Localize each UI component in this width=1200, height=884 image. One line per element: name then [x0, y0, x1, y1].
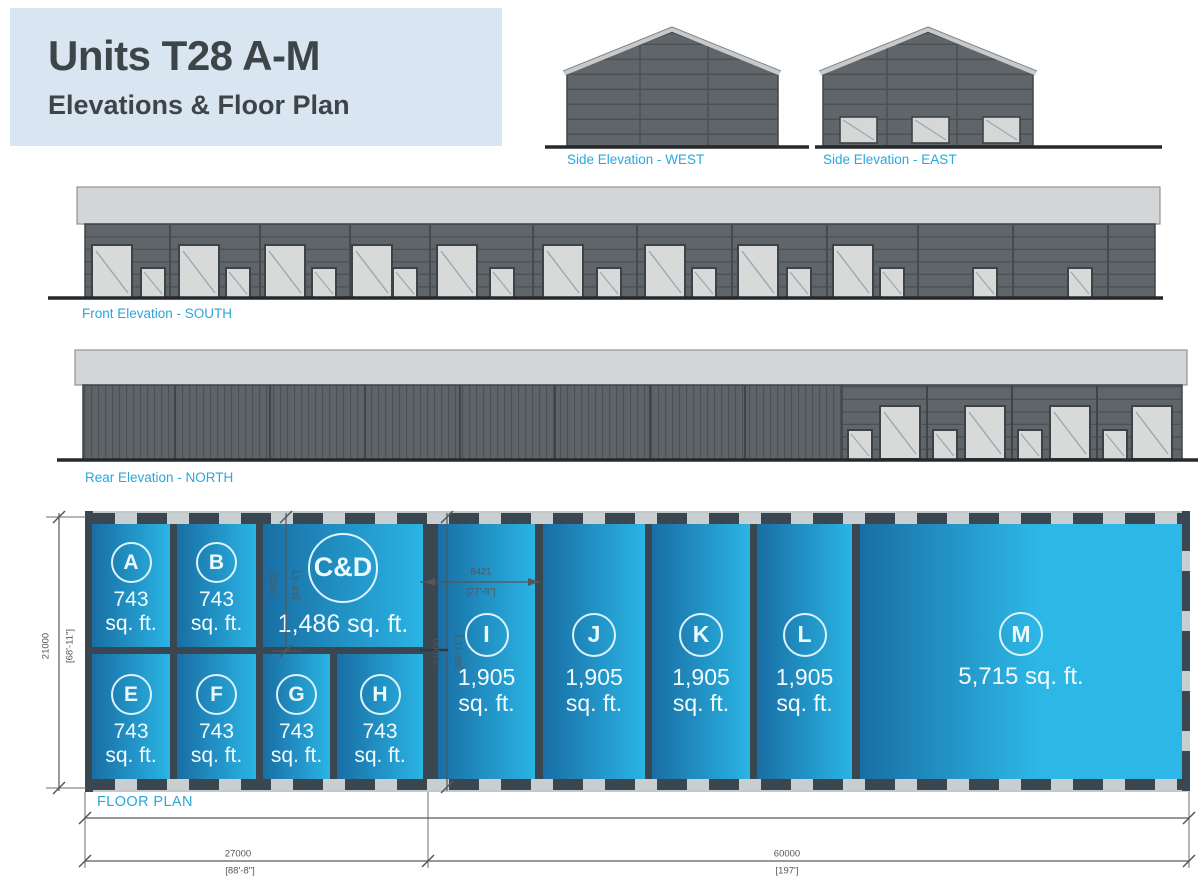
- unit-a: A 743 sq. ft.: [92, 524, 170, 647]
- dim-left-block-ft: [88'-8"]: [225, 866, 254, 877]
- unit-g: G 743 sq. ft.: [263, 654, 330, 779]
- page-subtitle: Elevations & Floor Plan: [48, 90, 350, 121]
- unit-j-area: 1,905: [565, 665, 623, 691]
- dim-unit-i-width-ft: [27'-8"]: [466, 587, 495, 598]
- title-block: Units T28 A-M Elevations & Floor Plan: [10, 8, 502, 146]
- rear-elevation-label: Rear Elevation - NORTH: [85, 470, 233, 485]
- dim-unit-i-depth-mm: 21000: [432, 639, 443, 665]
- unit-m-area: 5,715 sq. ft.: [958, 664, 1083, 690]
- unit-g-sqft: sq. ft.: [271, 744, 322, 767]
- unit-l-badge: L: [783, 613, 827, 657]
- unit-f-area: 743: [199, 720, 234, 743]
- unit-cd: C&D 1,486 sq. ft.: [263, 524, 423, 647]
- unit-b-area: 743: [199, 588, 234, 611]
- unit-m-badge: M: [999, 612, 1043, 656]
- unit-i-area: 1,905: [458, 665, 516, 691]
- unit-l: L 1,905 sq. ft.: [757, 524, 852, 779]
- unit-k-sqft: sq. ft.: [673, 691, 729, 717]
- west-gable-wall: [567, 32, 778, 146]
- rear-fascia: [75, 350, 1187, 385]
- west-elevation-label: Side Elevation - WEST: [567, 152, 704, 167]
- unit-g-badge: G: [276, 674, 317, 715]
- unit-h-area: 743: [362, 720, 397, 743]
- dim-right-block-ft: [197']: [776, 866, 799, 877]
- dim-depth-ft: [68'-11"]: [65, 629, 76, 663]
- front-elevation-label: Front Elevation - SOUTH: [82, 306, 232, 321]
- unit-b: B 743 sq. ft.: [177, 524, 256, 647]
- unit-a-badge: A: [111, 542, 152, 583]
- front-elevation-drawing: [40, 182, 1170, 314]
- floor-plan-label: FLOOR PLAN: [97, 794, 193, 810]
- unit-a-area: 743: [113, 588, 148, 611]
- unit-k-badge: K: [679, 613, 723, 657]
- unit-cd-badge: C&D: [308, 533, 378, 603]
- unit-e-area: 743: [113, 720, 148, 743]
- unit-h-badge: H: [360, 674, 401, 715]
- dim-depth-mm: 21000: [41, 633, 52, 659]
- dim-unit-i-width-mm: 8421: [470, 567, 491, 578]
- unit-j-sqft: sq. ft.: [566, 691, 622, 717]
- unit-e-sqft: sq. ft.: [105, 744, 156, 767]
- unit-m: M 5,715 sq. ft.: [860, 524, 1182, 779]
- unit-f-sqft: sq. ft.: [191, 744, 242, 767]
- unit-cd-area: 1,486 sq. ft.: [278, 611, 409, 639]
- unit-e-badge: E: [111, 674, 152, 715]
- unit-i-badge: I: [465, 613, 509, 657]
- dim-unit-i-depth-ft: [68'-11"]: [454, 635, 465, 669]
- drawing-sheet: Units T28 A-M Elevations & Floor Plan Si…: [0, 0, 1200, 884]
- unit-h: H 743 sq. ft.: [337, 654, 423, 779]
- unit-l-sqft: sq. ft.: [776, 691, 832, 717]
- unit-g-area: 743: [279, 720, 314, 743]
- dim-cd-depth-ft: [34'-3"]: [291, 570, 302, 599]
- dim-cd-depth-mm: 10425: [269, 572, 280, 598]
- rear-wall-ribbed: [83, 385, 842, 460]
- plan-east-wall: [1182, 511, 1190, 792]
- dim-right-block-mm: 60000: [774, 849, 800, 860]
- rear-elevation-drawing: [40, 345, 1200, 467]
- unit-e: E 743 sq. ft.: [92, 654, 170, 779]
- floor-plan: A 743 sq. ft. B 743 sq. ft. C&D 1,486 sq…: [85, 511, 1190, 792]
- page-title: Units T28 A-M: [48, 32, 320, 80]
- unit-k: K 1,905 sq. ft.: [652, 524, 750, 779]
- unit-a-sqft: sq. ft.: [105, 612, 156, 635]
- unit-f: F 743 sq. ft.: [177, 654, 256, 779]
- unit-b-badge: B: [196, 542, 237, 583]
- dim-left-block-mm: 27000: [225, 849, 251, 860]
- unit-l-area: 1,905: [776, 665, 834, 691]
- unit-h-sqft: sq. ft.: [354, 744, 405, 767]
- front-fascia: [77, 187, 1160, 224]
- unit-j: J 1,905 sq. ft.: [543, 524, 645, 779]
- west-elevation-drawing: [540, 25, 815, 170]
- plan-south-wall: [85, 779, 1190, 792]
- unit-b-sqft: sq. ft.: [191, 612, 242, 635]
- plan-north-wall: [85, 511, 1190, 524]
- unit-j-badge: J: [572, 613, 616, 657]
- unit-k-area: 1,905: [672, 665, 730, 691]
- east-elevation-label: Side Elevation - EAST: [823, 152, 957, 167]
- east-windows: [840, 117, 1020, 143]
- unit-f-badge: F: [196, 674, 237, 715]
- east-elevation-drawing: [813, 25, 1165, 170]
- unit-i-sqft: sq. ft.: [458, 691, 514, 717]
